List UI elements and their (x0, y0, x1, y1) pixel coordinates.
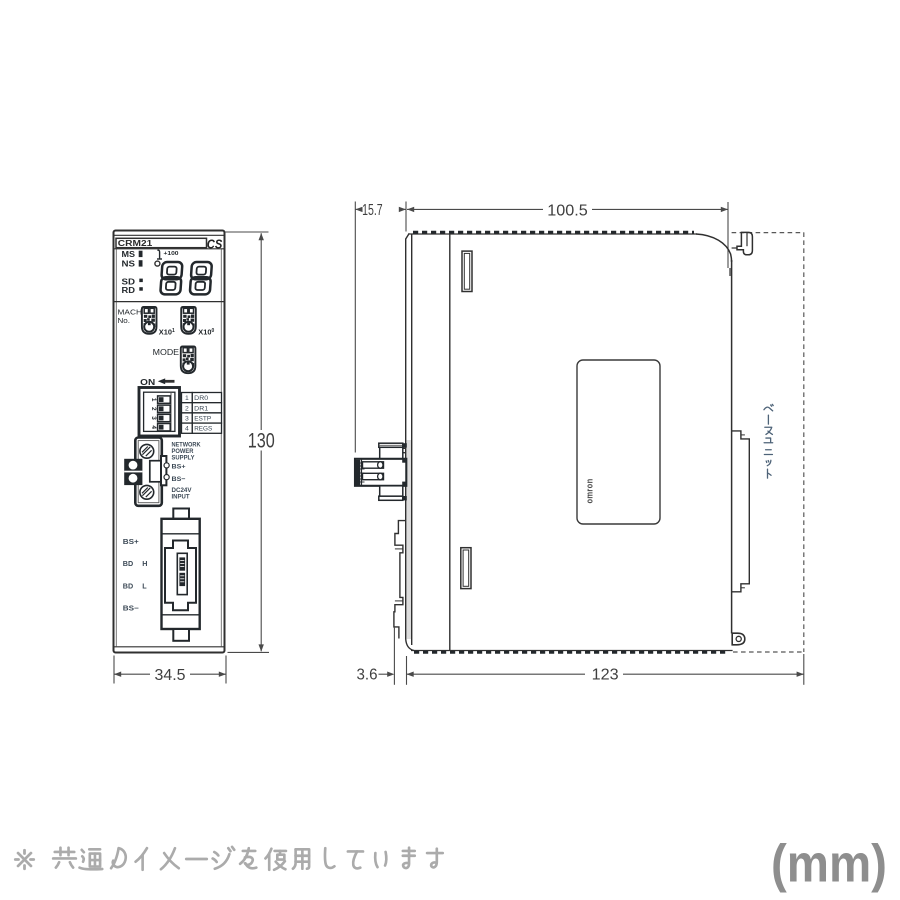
svg-text:BS+: BS+ (172, 464, 186, 471)
svg-text:MS: MS (122, 250, 136, 259)
svg-text:4: 4 (185, 426, 189, 433)
svg-text:ON: ON (140, 377, 155, 387)
svg-text:+100: +100 (164, 251, 179, 257)
svg-text:BS−: BS− (172, 476, 186, 483)
svg-text:3: 3 (150, 416, 157, 420)
svg-text:4: 4 (150, 425, 157, 429)
svg-text:15.7: 15.7 (362, 202, 383, 219)
svg-text:MODE: MODE (153, 348, 180, 357)
svg-text:No.: No. (118, 316, 131, 325)
svg-text:DC24V: DC24V (172, 488, 192, 494)
svg-text:SUPPLY: SUPPLY (172, 456, 195, 462)
svg-text:POWER: POWER (172, 449, 195, 455)
svg-text:REGS: REGS (194, 426, 212, 433)
svg-text:BS+: BS+ (123, 537, 139, 546)
svg-text:NETWORK: NETWORK (172, 443, 202, 449)
svg-text:1: 1 (185, 395, 189, 402)
svg-text:130: 130 (248, 430, 275, 453)
svg-text:BS−: BS− (123, 604, 139, 613)
svg-text:1: 1 (150, 398, 157, 402)
svg-text:123: 123 (592, 666, 619, 683)
svg-text:3.6: 3.6 (357, 666, 378, 683)
svg-text:ESTP: ESTP (194, 416, 211, 423)
svg-text:(mm): (mm) (771, 835, 887, 894)
svg-text:DR0: DR0 (194, 395, 208, 402)
svg-text:DR1: DR1 (194, 405, 208, 412)
svg-text:omron: omron (585, 479, 595, 504)
svg-text:100.5: 100.5 (547, 202, 588, 219)
svg-text:NS: NS (122, 260, 136, 269)
svg-text:34.5: 34.5 (155, 667, 186, 684)
svg-text:2: 2 (150, 407, 157, 411)
svg-text:CRM21: CRM21 (118, 238, 153, 248)
svg-text:3: 3 (185, 416, 189, 423)
svg-text:INPUT: INPUT (172, 495, 190, 501)
svg-text:RD: RD (122, 286, 136, 295)
svg-text:2: 2 (185, 405, 189, 412)
